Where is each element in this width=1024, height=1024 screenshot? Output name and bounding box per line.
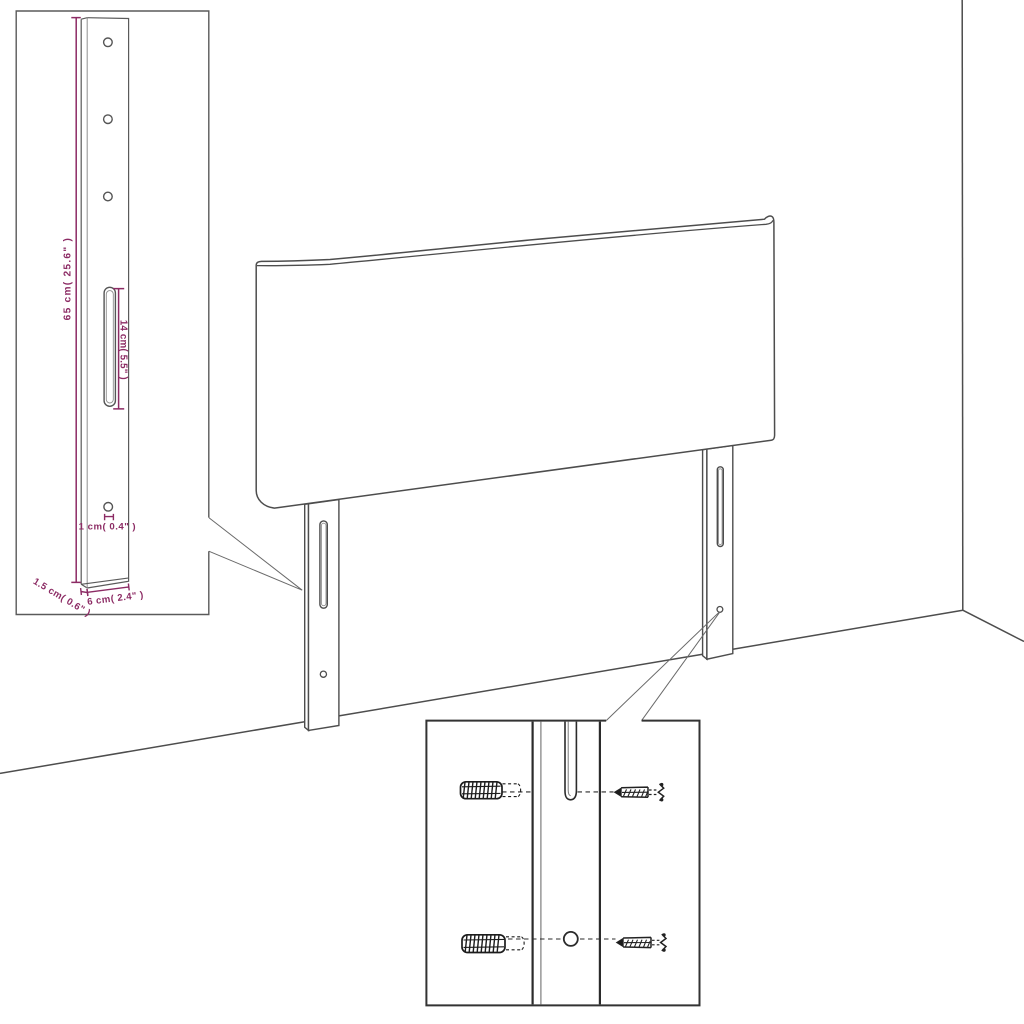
svg-text:65 cm( 25.6" ): 65 cm( 25.6" ) [62,237,73,321]
svg-text:1 cm( 0.4" ): 1 cm( 0.4" ) [79,521,136,532]
svg-text:14 cm( 5.5" ): 14 cm( 5.5" ) [118,320,129,380]
